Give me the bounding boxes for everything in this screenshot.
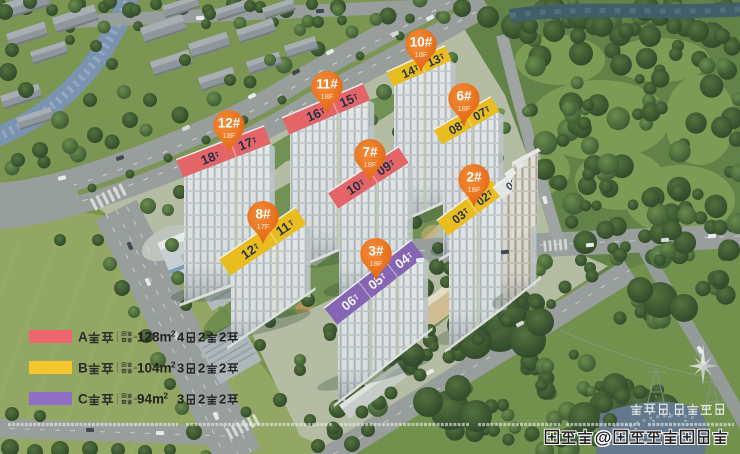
svg-text:3: 3 — [177, 392, 184, 407]
svg-text:,: , — [668, 405, 671, 417]
svg-text:2#: 2# — [466, 170, 482, 185]
svg-text:A: A — [78, 330, 88, 345]
svg-text:2: 2 — [198, 330, 205, 345]
svg-text:6#: 6# — [456, 89, 472, 104]
svg-text:18F: 18F — [223, 131, 236, 140]
svg-text:2: 2 — [219, 330, 226, 345]
svg-text:2: 2 — [171, 329, 176, 339]
svg-text:12#: 12# — [218, 116, 241, 131]
svg-text:2: 2 — [171, 360, 176, 370]
svg-text:2: 2 — [198, 392, 205, 407]
svg-text:18F: 18F — [370, 259, 383, 268]
svg-text:2: 2 — [163, 391, 168, 401]
svg-text:@: @ — [595, 428, 612, 447]
svg-text:B: B — [78, 361, 88, 376]
svg-text:17F: 17F — [257, 222, 270, 231]
svg-text:18F: 18F — [468, 185, 481, 194]
svg-text:104m: 104m — [137, 361, 172, 376]
svg-text:128m: 128m — [137, 330, 172, 345]
svg-text:18F: 18F — [321, 92, 334, 101]
svg-text:4: 4 — [177, 330, 185, 345]
svg-text:3: 3 — [177, 361, 184, 376]
svg-text:18F: 18F — [415, 50, 428, 59]
svg-text:2: 2 — [219, 392, 226, 407]
svg-text:2: 2 — [219, 361, 226, 376]
svg-text:10#: 10# — [410, 35, 433, 50]
svg-text:18F: 18F — [364, 160, 377, 169]
svg-text:3#: 3# — [368, 244, 384, 259]
svg-text:11#: 11# — [316, 77, 338, 92]
svg-text:C: C — [78, 392, 88, 407]
svg-text:8#: 8# — [255, 207, 271, 222]
svg-text:18F: 18F — [458, 104, 471, 113]
svg-text:7#: 7# — [362, 145, 378, 160]
svg-text:94m: 94m — [137, 392, 164, 407]
svg-text:2: 2 — [198, 361, 205, 376]
